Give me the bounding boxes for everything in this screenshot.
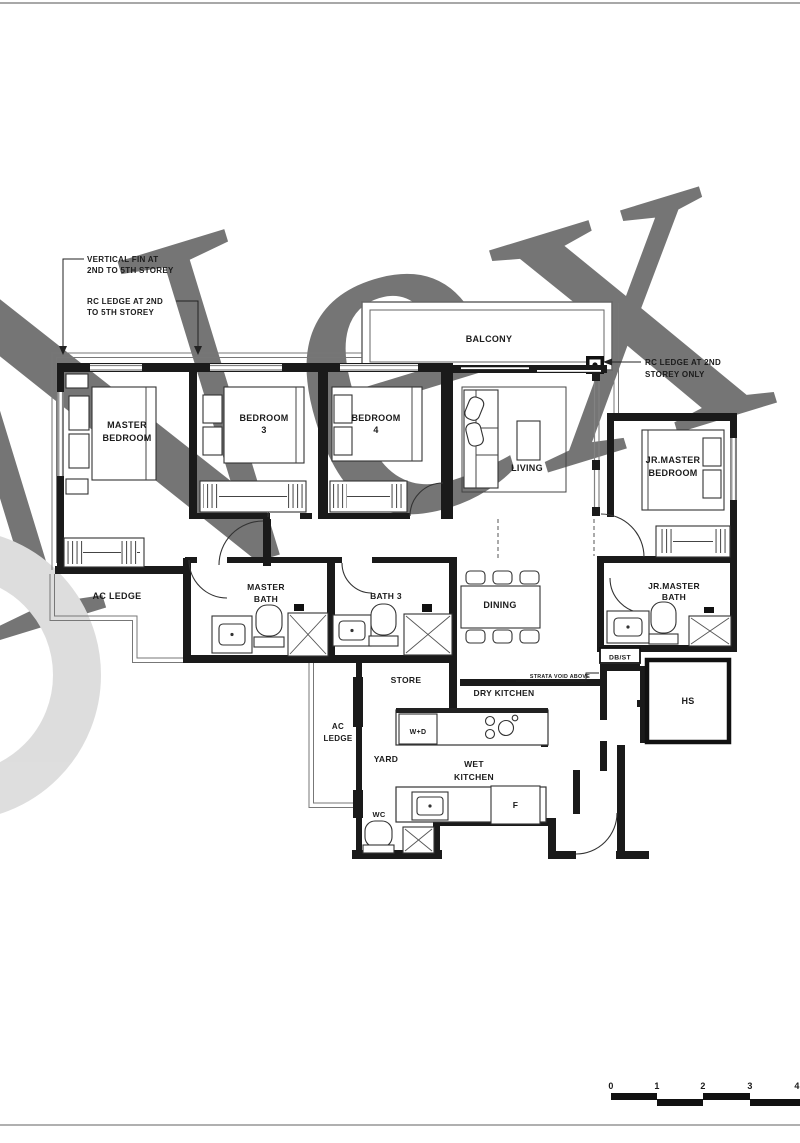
label-ac-ledge: AC LEDGE — [93, 591, 142, 601]
rc-ledge-right-note: RC LEDGE AT 2ND — [645, 358, 721, 367]
pillow — [703, 438, 721, 466]
chair — [520, 630, 539, 643]
chair — [493, 571, 512, 584]
chair — [493, 630, 512, 643]
window-jrmaster-right — [731, 438, 737, 500]
toilet — [651, 602, 676, 633]
vertical-fin-note: VERTICAL FIN AT — [87, 255, 158, 264]
pillow — [334, 427, 352, 455]
floor-plan-page: Nex — [0, 0, 800, 1143]
label-ac-ledge-mid: AC — [332, 722, 344, 731]
floor-plan-svg: Nex — [0, 0, 800, 1143]
pillow — [334, 395, 352, 423]
label-jr-master-bath: JR.MASTER — [648, 581, 700, 591]
label-master-bath: MASTER — [247, 582, 285, 592]
label-balcony: BALCONY — [466, 334, 513, 344]
wardrobe-hatch — [659, 529, 673, 553]
scale-tick-0: 0 — [608, 1081, 613, 1091]
label-jr-master-bedroom: JR.MASTER — [646, 455, 701, 465]
label-db-st: DB/ST — [609, 655, 631, 662]
wardrobe-hatch — [333, 484, 347, 508]
window-bedroom4-top — [340, 364, 418, 371]
svg-text:STOREY ONLY: STOREY ONLY — [645, 370, 705, 379]
label-hs: HS — [681, 696, 694, 706]
svg-text:KITCHEN: KITCHEN — [454, 772, 494, 782]
nightstand — [66, 479, 88, 494]
pillow — [69, 396, 89, 430]
utility-boxes — [600, 648, 729, 742]
label-wc: WC — [372, 810, 385, 819]
scale-tick-1: 1 — [654, 1081, 659, 1091]
svg-text:BATH: BATH — [662, 592, 686, 602]
window-bedroom3-top — [210, 364, 282, 371]
wc-fixtures — [363, 821, 434, 853]
pillow — [203, 395, 222, 423]
label-master-bedroom: MASTER — [107, 420, 147, 430]
pillow — [69, 434, 89, 468]
jr-master-bath-fixtures — [607, 602, 731, 646]
toilet — [371, 604, 396, 635]
wardrobe-hatch — [121, 541, 137, 564]
toilet — [256, 605, 282, 636]
label-fridge: F — [513, 800, 519, 810]
label-bath3: BATH 3 — [370, 591, 402, 601]
chair — [466, 571, 485, 584]
chair — [466, 630, 485, 643]
svg-text:3: 3 — [261, 425, 266, 435]
label-wet-kitchen: WET — [464, 759, 484, 769]
label-store: STORE — [391, 675, 422, 685]
pillow — [703, 470, 721, 498]
strata-void-note: STRATA VOID ABOVE — [530, 674, 590, 680]
window-master-left — [58, 392, 64, 476]
nightstand — [66, 374, 88, 388]
door-entrance — [576, 813, 617, 854]
svg-text:BATH: BATH — [254, 594, 278, 604]
tv-console — [517, 421, 540, 460]
svg-text:BEDROOM: BEDROOM — [648, 468, 697, 478]
scale-bar: 0 1 2 3 4 — [608, 1081, 800, 1106]
svg-text:BEDROOM: BEDROOM — [102, 433, 151, 443]
wardrobe-hatch — [203, 484, 219, 508]
svg-text:2ND TO 5TH STOREY: 2ND TO 5TH STOREY — [87, 266, 174, 275]
scale-tick-2: 2 — [700, 1081, 705, 1091]
svg-text:LEDGE: LEDGE — [323, 734, 352, 743]
label-dining: DINING — [483, 600, 516, 610]
scale-tick-4: 4 — [794, 1081, 799, 1091]
toilet — [365, 821, 392, 847]
rc-ledge-left-note: RC LEDGE AT 2ND — [87, 297, 163, 306]
wardrobe-hatch — [67, 541, 83, 564]
svg-text:TO 5TH STOREY: TO 5TH STOREY — [87, 308, 155, 317]
label-wd: W+D — [410, 729, 427, 736]
door-jr-master-bath — [610, 578, 645, 613]
label-bedroom4: BEDROOM — [351, 413, 400, 423]
wardrobe-hatch — [390, 484, 404, 508]
wardrobe-hatch — [713, 529, 727, 553]
pillow — [203, 427, 222, 455]
label-yard: YARD — [374, 754, 399, 764]
chair — [520, 571, 539, 584]
window-master-top — [90, 364, 142, 371]
label-bedroom3: BEDROOM — [239, 413, 288, 423]
label-dry-kitchen: DRY KITCHEN — [474, 688, 535, 698]
label-living: LIVING — [511, 463, 543, 473]
wardrobe-hatch — [287, 484, 303, 508]
bedroom3-furniture — [200, 387, 306, 512]
svg-text:4: 4 — [373, 425, 378, 435]
scale-tick-3: 3 — [747, 1081, 752, 1091]
